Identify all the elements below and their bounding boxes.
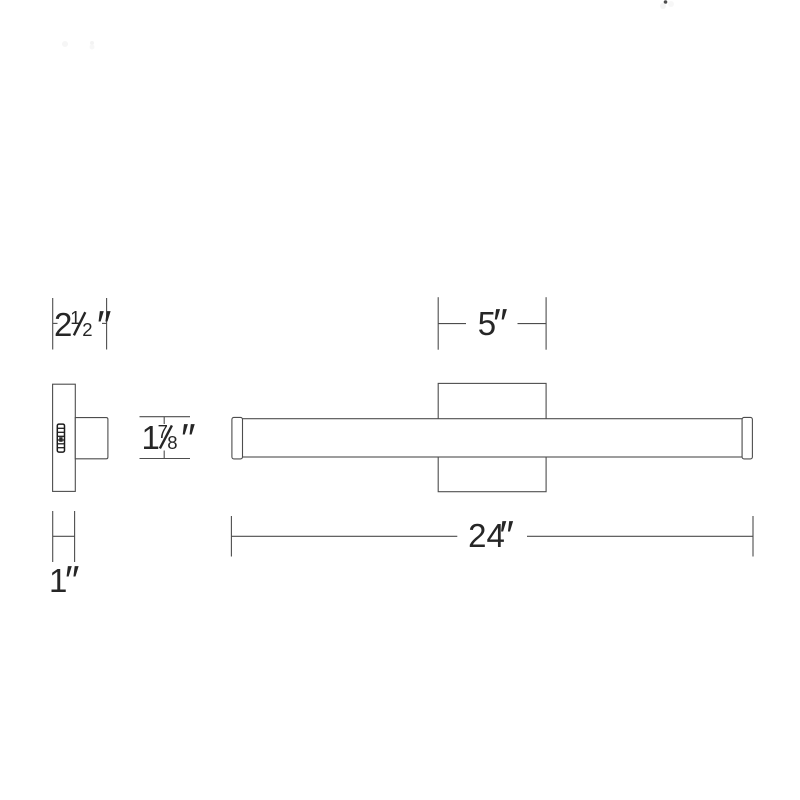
svg-text:″: ″ [181,416,196,462]
svg-text:5″: 5″ [478,301,508,347]
svg-text:1″: 1″ [49,558,79,604]
svg-text:24″: 24″ [468,513,514,559]
svg-text:8: 8 [167,432,177,453]
svg-text:″: ″ [97,303,112,349]
svg-text:2: 2 [82,319,92,340]
